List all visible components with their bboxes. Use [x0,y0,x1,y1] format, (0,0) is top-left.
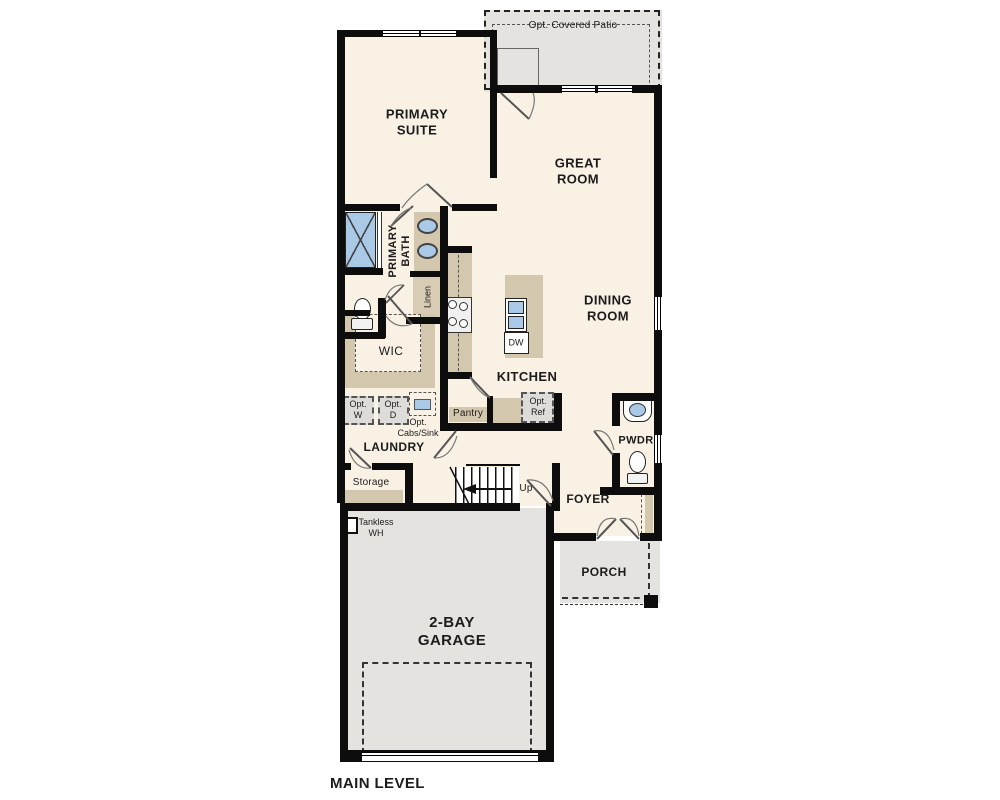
wall [378,298,386,338]
pwdr-sink-basin [629,403,646,417]
wall [445,372,472,379]
foyer-closet-rod [641,494,642,534]
wall [490,30,497,178]
storage-label: Storage [353,477,389,489]
window [383,30,419,37]
garage-label: 2-BAY GARAGE [418,614,486,650]
wall [654,463,662,540]
wall [654,330,662,435]
porch-post [644,595,658,608]
patio-stoop [497,48,539,88]
opt-washer-label: Opt. W [349,399,366,421]
wall [440,206,448,378]
tankless-wh-label: Tankless WH [358,517,393,539]
wall [340,503,348,761]
island-sink-basin-1 [508,301,524,314]
stove-burner-1 [448,300,457,309]
window [654,297,661,330]
wall [337,268,383,275]
window [421,30,456,37]
pwdr-toilet-bowl [629,451,646,473]
ref-counter [493,398,521,423]
wall [654,85,662,297]
wall [337,204,400,211]
primary-bath-label: PRIMARY BATH [387,224,413,277]
linen-label: Linen [423,286,434,308]
foyer-label: FOYER [566,492,609,506]
stove-burner-3 [448,317,457,326]
foyer-closet [645,494,653,534]
porch-label: PORCH [581,565,626,579]
primary-suite-label: PRIMARY SUITE [386,106,448,137]
main-level-label: MAIN LEVEL [330,775,425,793]
laundry-label: LAUNDRY [363,440,424,454]
wall [337,30,345,503]
garage-door-dashed [362,662,532,754]
patio-label: Opt. Covered Patio [529,20,618,32]
wall [497,85,503,93]
pwdr-label: PWDR [618,434,653,447]
dw-label: DW [509,338,524,349]
wall [440,423,562,431]
floor-plan: Opt. Covered Patio PRIMARY SUITE GREAT R… [0,0,1000,800]
stove-burner-4 [459,319,468,328]
vanity-sink-1 [417,218,438,234]
opt-sink-basin [414,399,431,410]
staircase [455,467,519,508]
garage-door [362,752,538,761]
window [562,85,595,92]
up-label: Up [519,483,532,495]
wall [487,396,493,425]
pantry-label: Pantry [453,408,483,420]
stove-burner-2 [459,302,468,311]
vanity-sink-2 [417,243,438,259]
great-room-label: GREAT ROOM [555,155,602,186]
pwdr-toilet-tank [627,473,648,484]
wall [340,503,520,511]
dining-room-label: DINING ROOM [584,292,632,323]
window [598,85,632,92]
kitchen-label: KITCHEN [497,369,558,385]
wall [452,204,497,211]
shower-glass-door [377,212,382,268]
wall [337,463,351,470]
wall [546,503,554,761]
wall [612,393,620,426]
wall [554,393,562,427]
wall [410,271,444,277]
wall [497,85,562,93]
opt-cabs-sink-label: Opt. Cabs/Sink [397,417,438,439]
window [654,435,661,463]
wic-label: WIC [379,344,404,358]
stairs-top-edge [466,464,520,466]
wall [406,317,448,324]
wall [445,246,472,253]
wall [640,533,662,541]
wall [345,310,370,316]
shower [345,212,376,268]
bath-toilet-bowl [354,298,371,320]
wall [440,378,448,428]
opt-ref-label: Opt. Ref [529,396,546,418]
wall [552,533,596,541]
island-sink-basin-2 [508,316,524,329]
bath-toilet-tank [351,318,373,330]
